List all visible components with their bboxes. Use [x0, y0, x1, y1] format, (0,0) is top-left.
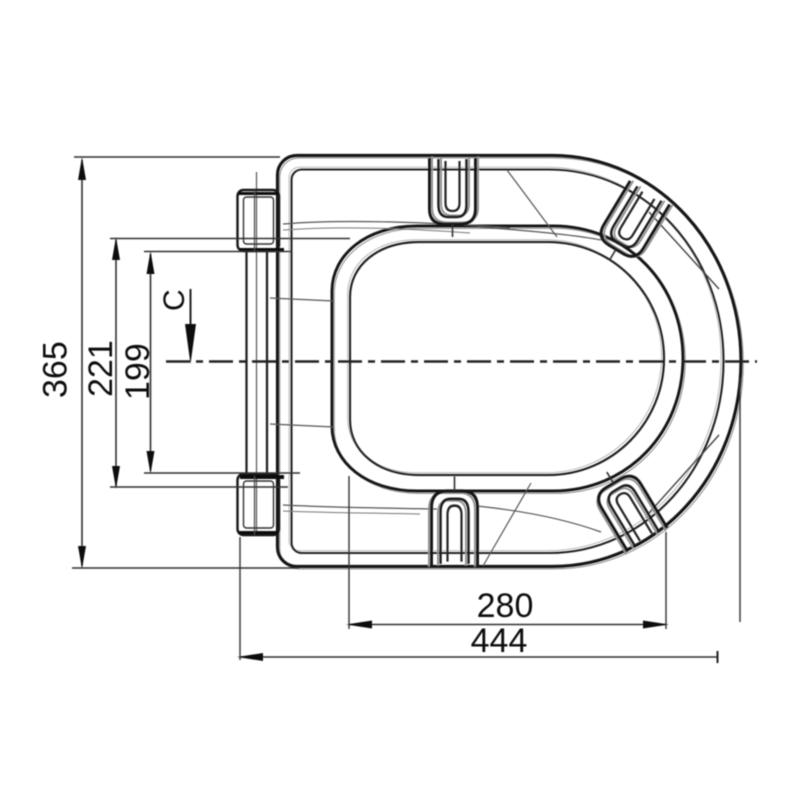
svg-text:444: 444 [471, 622, 528, 660]
svg-text:221: 221 [82, 340, 120, 397]
svg-text:280: 280 [477, 587, 534, 625]
svg-text:C: C [158, 289, 191, 311]
svg-text:199: 199 [119, 343, 157, 400]
svg-text:365: 365 [37, 341, 75, 398]
